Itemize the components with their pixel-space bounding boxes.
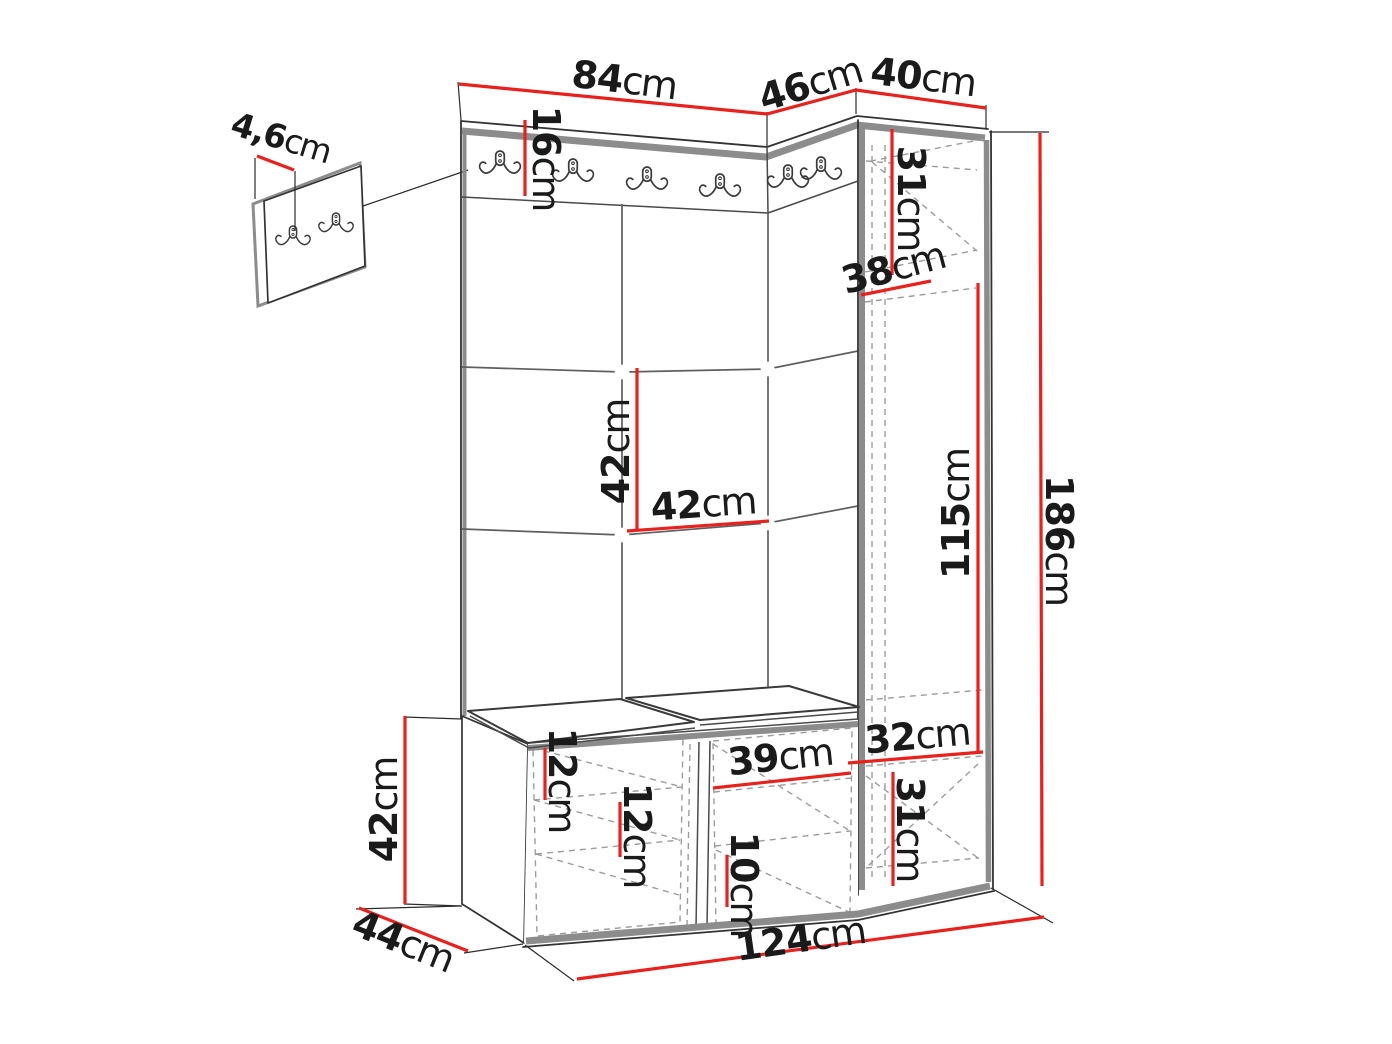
dim-tile-height: 42cm (594, 400, 638, 505)
dim-cabinet-width: 40cm (868, 49, 977, 105)
diagram-canvas: 84cm 46cm 40cm 4,6cm 16cm 31cm 38cm 42cm… (0, 0, 1392, 1044)
dim-total-height: 186cm (1037, 475, 1081, 605)
dim-rail-height: 16cm (524, 106, 568, 211)
double-coat-hook-icon (700, 174, 741, 196)
dim-tile-width: 42cm (649, 478, 757, 529)
pointer-line (363, 170, 468, 206)
double-coat-hook-icon (627, 167, 668, 189)
dim-cabinet-top-height: 31cm (889, 146, 933, 251)
dim-shelf-gap-bottom: 10cm (722, 832, 766, 937)
dim-corner-section-width: 46cm (753, 48, 866, 121)
small-hook-panel (253, 156, 365, 306)
bench-left-face (462, 716, 528, 943)
furniture-dimension-diagram: 84cm 46cm 40cm 4,6cm 16cm 31cm 38cm 42cm… (0, 0, 1392, 1044)
dim-shelf-gap-lower: 12cm (615, 783, 659, 888)
dim-door-height: 115cm (934, 449, 978, 579)
double-coat-hook-icon (480, 151, 521, 173)
dim-cabinet-bottom-height: 31cm (888, 777, 932, 882)
dim-shelf-gap-upper: 12cm (540, 728, 584, 833)
dim-main-section-width: 84cm (569, 52, 678, 108)
dim-bench-height: 42cm (362, 758, 406, 863)
dim-bench-depth: 44cm (346, 901, 460, 981)
dim-cabinet-bottom-width: 32cm (863, 710, 971, 763)
dim-wall-panel-width: 4,6cm (227, 103, 336, 170)
